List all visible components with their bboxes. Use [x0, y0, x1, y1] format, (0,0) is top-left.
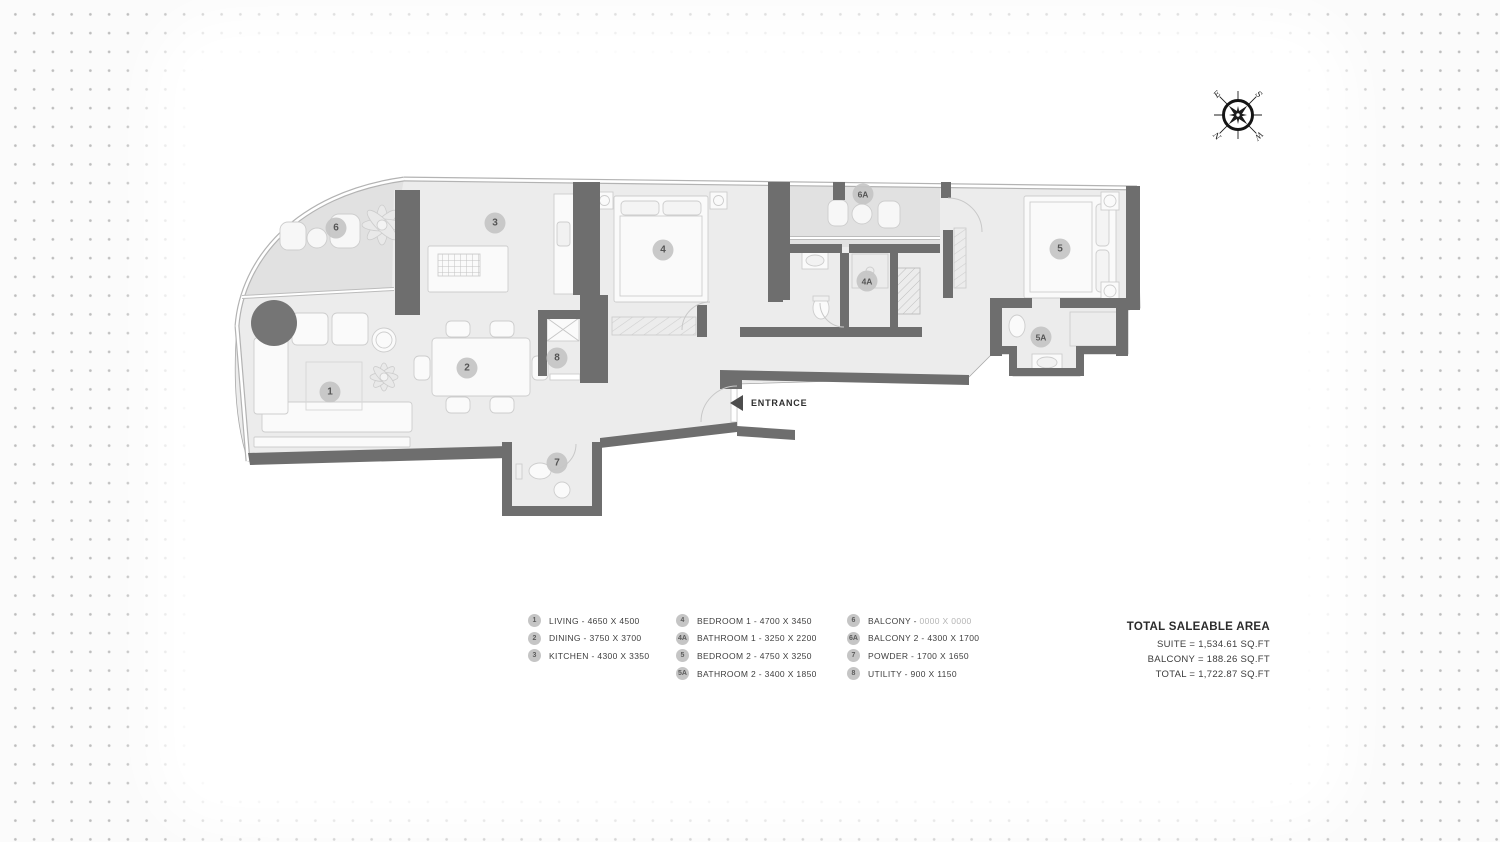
entrance-arrow-icon — [730, 395, 743, 411]
legend-item: 4A BATHROOM 1 - 3250 X 2200 — [676, 630, 817, 648]
legend-marker: 4A — [676, 632, 689, 645]
legend-label: BEDROOM 1 - 4700 X 3450 — [697, 616, 812, 626]
toilet-5a — [1009, 315, 1025, 337]
legend-marker: 6A — [847, 632, 860, 645]
entrance-label: ENTRANCE — [751, 398, 807, 408]
sink-powder — [554, 482, 570, 498]
room-marker-balcony2: 6A — [853, 184, 874, 205]
suite-area-line: SUITE = 1,534.61 SQ.FT — [1040, 637, 1270, 652]
pillow — [621, 201, 659, 215]
room-marker-bathroom2: 5A — [1031, 327, 1052, 348]
compass-rose: E S N W — [1206, 83, 1270, 147]
dining-chair — [490, 321, 514, 337]
legend-marker: 2 — [528, 632, 541, 645]
legend-label: LIVING - 4650 X 4500 — [549, 616, 640, 626]
legend-label: BALCONY - 0000 X 0000 — [868, 616, 972, 626]
legend-label: BATHROOM 2 - 3400 X 1850 — [697, 669, 817, 679]
legend-item: 4 BEDROOM 1 - 4700 X 3450 — [676, 612, 817, 630]
legend-item: 7 POWDER - 1700 X 1650 — [847, 647, 979, 665]
armchair — [292, 313, 328, 345]
balcony-chair — [828, 200, 848, 226]
legend-marker: 8 — [847, 667, 860, 680]
legend-item: 2 DINING - 3750 X 3700 — [528, 630, 649, 648]
legend-label: KITCHEN - 4300 X 3350 — [549, 651, 649, 661]
legend-item: 5A BATHROOM 2 - 3400 X 1850 — [676, 665, 817, 683]
total-area-line: TOTAL = 1,722.87 SQ.FT — [1040, 667, 1270, 682]
closet-hatch — [896, 268, 920, 314]
legend-marker: 5 — [676, 649, 689, 662]
legend-column-2: 4 BEDROOM 1 - 4700 X 3450 4A BATHROOM 1 … — [676, 612, 817, 682]
legend-item: 6 BALCONY - 0000 X 0000 — [847, 612, 979, 630]
total-area-summary: TOTAL SALEABLE AREA SUITE = 1,534.61 SQ.… — [1040, 621, 1270, 683]
room-marker-balcony: 6 — [326, 218, 347, 239]
floor-plan-drawing — [232, 170, 1142, 522]
legend-label: POWDER - 1700 X 1650 — [868, 651, 969, 661]
legend-item: 1 LIVING - 4650 X 4500 — [528, 612, 649, 630]
pillow — [663, 201, 701, 215]
legend-marker: 1 — [528, 614, 541, 627]
total-area-title: TOTAL SALEABLE AREA — [1040, 621, 1270, 633]
floor-plan: 1 2 3 4 4A 5 5A 6 6A 7 8 ENTRANCE — [232, 170, 1142, 522]
legend-item: 3 KITCHEN - 4300 X 3350 — [528, 647, 649, 665]
legend-marker: 6 — [847, 614, 860, 627]
legend-marker: 3 — [528, 649, 541, 662]
legend-label: BEDROOM 2 - 4750 X 3250 — [697, 651, 812, 661]
room-marker-living: 1 — [320, 382, 341, 403]
column — [251, 300, 297, 346]
balcony-chair — [878, 201, 900, 228]
legend-item: 6A BALCONY 2 - 4300 X 1700 — [847, 630, 979, 648]
door-leaf — [550, 374, 580, 380]
stove — [438, 254, 480, 276]
room-marker-kitchen: 3 — [485, 213, 506, 234]
room-marker-bedroom1: 4 — [653, 240, 674, 261]
legend-label: BALCONY 2 - 4300 X 1700 — [868, 633, 979, 643]
room-marker-bathroom1: 4A — [857, 271, 878, 292]
room-marker-powder: 7 — [547, 453, 568, 474]
nightstand — [710, 192, 727, 209]
dining-table — [432, 338, 530, 396]
dining-chair — [490, 397, 514, 413]
legend: 1 LIVING - 4650 X 4500 2 DINING - 3750 X… — [528, 612, 998, 687]
balcony-table — [852, 204, 872, 224]
balcony-table — [307, 228, 327, 248]
legend-label: UTILITY - 900 X 1150 — [868, 669, 957, 679]
room-marker-dining: 2 — [457, 358, 478, 379]
legend-marker: 7 — [847, 649, 860, 662]
legend-marker: 4 — [676, 614, 689, 627]
legend-muted-dims: 0000 X 0000 — [920, 616, 972, 626]
wardrobe-2 — [954, 228, 966, 288]
legend-marker: 5A — [676, 667, 689, 680]
floor-plan-page: { "plan": { "entrance_label": "ENTRANCE"… — [0, 0, 1500, 842]
legend-label: BATHROOM 1 - 3250 X 2200 — [697, 633, 817, 643]
sofa-chaise — [254, 338, 288, 414]
dining-chair — [446, 321, 470, 337]
room-marker-bedroom2: 5 — [1050, 239, 1071, 260]
armchair — [332, 313, 368, 345]
entrance-indicator: ENTRANCE — [730, 395, 807, 411]
legend-label: DINING - 3750 X 3700 — [549, 633, 642, 643]
balcony-area-line: BALCONY = 188.26 SQ.FT — [1040, 652, 1270, 667]
dining-chair — [446, 397, 470, 413]
legend-column-1: 1 LIVING - 4650 X 4500 2 DINING - 3750 X… — [528, 612, 649, 665]
dining-chair — [414, 356, 430, 380]
legend-item: 5 BEDROOM 2 - 4750 X 3250 — [676, 647, 817, 665]
kitchen-sink — [557, 222, 570, 246]
tv-console — [254, 437, 410, 447]
room-marker-utility: 8 — [547, 348, 568, 369]
legend-column-3: 6 BALCONY - 0000 X 0000 6A BALCONY 2 - 4… — [847, 612, 979, 682]
legend-item: 8 UTILITY - 900 X 1150 — [847, 665, 979, 683]
compass-icon: E S N W — [1206, 83, 1270, 147]
balcony-chair — [280, 222, 306, 250]
